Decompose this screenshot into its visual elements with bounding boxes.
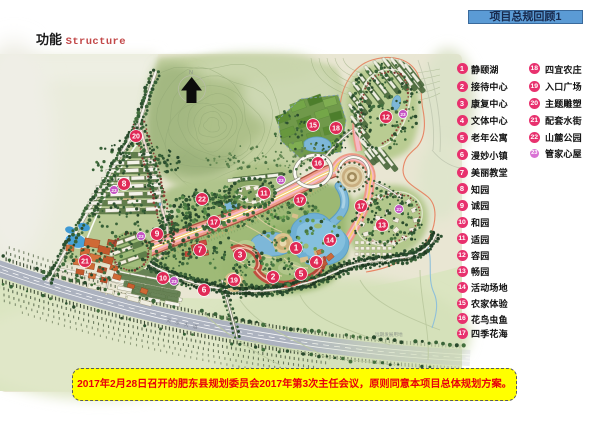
svg-text:1: 1 <box>294 244 299 253</box>
svg-text:远期发展用地: 远期发展用地 <box>375 331 403 338</box>
svg-text:2: 2 <box>271 273 276 282</box>
svg-text:23: 23 <box>138 234 144 240</box>
svg-text:23: 23 <box>171 279 177 285</box>
svg-text:11: 11 <box>260 191 268 198</box>
svg-text:23: 23 <box>111 188 117 194</box>
svg-text:4: 4 <box>314 258 319 267</box>
svg-text:5: 5 <box>299 270 304 279</box>
svg-text:22: 22 <box>198 197 206 204</box>
svg-text:23: 23 <box>396 207 402 213</box>
svg-text:17: 17 <box>210 220 218 227</box>
svg-text:N: N <box>189 70 193 76</box>
svg-text:9: 9 <box>155 230 160 239</box>
svg-text:16: 16 <box>314 161 322 168</box>
svg-text:3: 3 <box>238 251 243 260</box>
svg-text:20: 20 <box>132 134 140 141</box>
svg-text:13: 13 <box>378 223 386 230</box>
svg-text:8: 8 <box>122 180 127 189</box>
svg-text:12: 12 <box>382 115 390 122</box>
svg-text:23: 23 <box>278 178 284 184</box>
svg-text:15: 15 <box>309 123 317 130</box>
svg-text:17: 17 <box>357 204 365 211</box>
svg-text:6: 6 <box>202 286 207 295</box>
svg-text:21: 21 <box>81 259 89 266</box>
svg-text:10: 10 <box>159 276 167 283</box>
svg-text:19: 19 <box>230 278 238 285</box>
svg-text:7: 7 <box>198 246 203 255</box>
svg-text:17: 17 <box>296 198 304 205</box>
svg-text:14: 14 <box>326 238 334 245</box>
svg-text:23: 23 <box>400 112 406 118</box>
svg-text:18: 18 <box>332 126 340 133</box>
